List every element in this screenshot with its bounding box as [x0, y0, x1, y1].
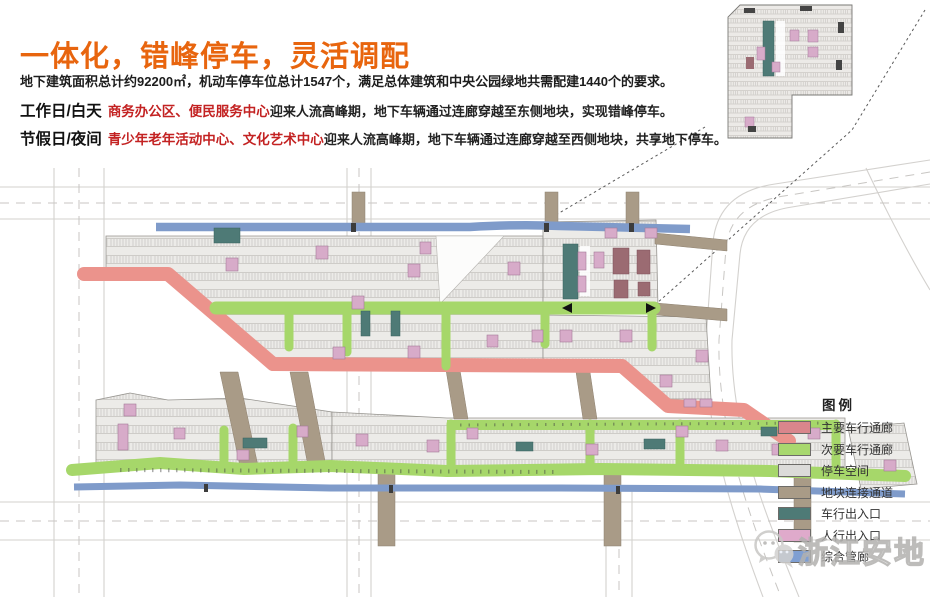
legend-label: 车行出入口: [821, 505, 881, 522]
schedule-description: 迎来人流高峰期，地下车辆通过连廊穿越至西侧地块，共享地下停车。: [324, 132, 727, 147]
legend-swatch: [778, 443, 811, 456]
schedule-highlight: 青少年老年活动中心、文化艺术中心: [108, 132, 324, 147]
legend-label: 次要车行通廊: [821, 441, 893, 458]
schedule-line-holiday: 节假日/夜间青少年老年活动中心、文化艺术中心迎来人流高峰期，地下车辆通过连廊穿越…: [20, 127, 727, 149]
schedule-description: 迎来人流高峰期，地下车辆通过连廊穿越至东侧地块，实现错峰停车。: [270, 104, 673, 119]
legend-item-plot-connector: 地块连接通道: [778, 486, 928, 499]
inset-garage-plan: [728, 5, 852, 138]
legend-label: 主要车行通廊: [821, 419, 893, 436]
legend-label: 综合管廊: [821, 548, 869, 565]
schedule-highlight: 商务办公区、便民服务中心: [108, 104, 270, 119]
legend-swatch: [778, 529, 811, 542]
legend-swatch: [778, 421, 811, 434]
legend-item-pedestrian-entrance: 人行出入口: [778, 529, 928, 542]
legend-swatch: [778, 464, 811, 477]
legend-item-vehicle-entrance: 车行出入口: [778, 507, 928, 520]
legend-item-utility-corridor: 综合管廊: [778, 550, 928, 563]
legend-item-main-corridor: 主要车行通廊: [778, 421, 928, 434]
legend: 图例 主要车行通廊 次要车行通廊 停车空间 地块连接通道 车行出入口 人行出入口…: [778, 394, 928, 572]
schedule-period: 节假日/夜间: [20, 131, 102, 148]
parking-plate-upper-right-lower: [543, 315, 711, 399]
legend-swatch: [778, 486, 811, 499]
legend-item-parking-space: 停车空间: [778, 464, 928, 477]
legend-swatch: [778, 550, 811, 563]
legend-item-secondary-corridor: 次要车行通廊: [778, 443, 928, 456]
legend-swatch: [778, 507, 811, 520]
legend-label: 人行出入口: [821, 527, 881, 544]
page-title: 一体化，错峰停车，灵活调配: [20, 33, 410, 75]
legend-title: 图例: [822, 394, 928, 414]
schedule-line-weekday: 工作日/白天商务办公区、便民服务中心迎来人流高峰期，地下车辆通过连廊穿越至东侧地…: [20, 99, 673, 121]
intro-text: 地下建筑面积总计约92200㎡，机动车停车位总计1547个，满足总体建筑和中央公…: [20, 71, 673, 90]
legend-label: 停车空间: [821, 462, 869, 479]
legend-label: 地块连接通道: [821, 484, 893, 501]
schedule-period: 工作日/白天: [20, 103, 102, 120]
